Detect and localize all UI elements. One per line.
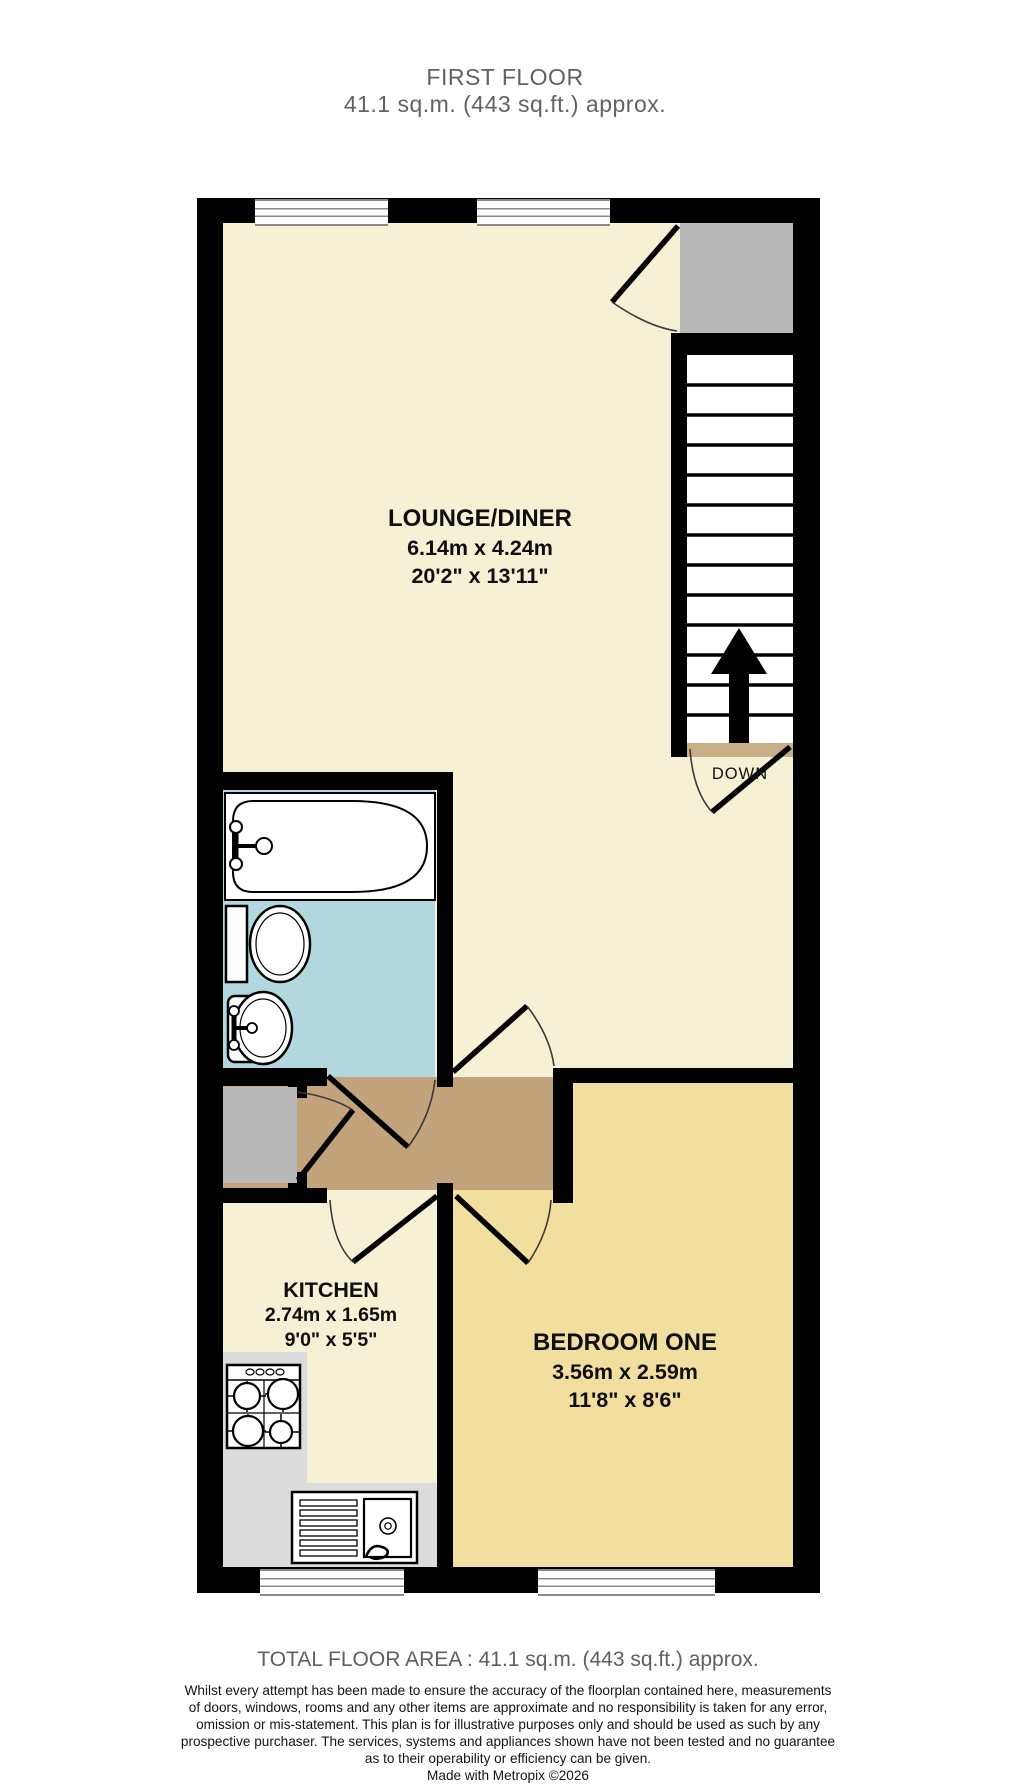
sink-icon xyxy=(292,1492,417,1563)
floor-area-subtitle: 41.1 sq.m. (443 sq.ft.) approx. xyxy=(344,91,666,118)
bathroom-door xyxy=(328,1076,435,1147)
stairs-down-label: DOWN xyxy=(712,765,768,784)
kitchen-label: KITCHEN 2.74m x 1.65m 9'0" x 5'5" xyxy=(265,1277,397,1353)
lounge-label: LOUNGE/DINER 6.14m x 4.24m 20'2" x 13'11… xyxy=(388,504,572,590)
bedroom-imperial: 11'8" x 8'6" xyxy=(533,1386,717,1414)
lounge-hall-door xyxy=(453,1006,554,1072)
bedroom-name: BEDROOM ONE xyxy=(533,1328,717,1358)
floor-title: FIRST FLOOR xyxy=(344,64,666,91)
staircase xyxy=(687,355,793,757)
lounge-imperial: 20'2" x 13'11" xyxy=(388,562,572,590)
hob-icon xyxy=(227,1365,300,1448)
kitchen-imperial: 9'0" x 5'5" xyxy=(265,1328,397,1353)
lounge-metric: 6.14m x 4.24m xyxy=(388,534,572,562)
kitchen-name: KITCHEN xyxy=(265,1277,397,1303)
cupboard-door xyxy=(298,1092,353,1180)
kitchen-door xyxy=(330,1196,437,1262)
page-title: FIRST FLOOR 41.1 sq.m. (443 sq.ft.) appr… xyxy=(344,64,666,118)
floorplan-page: FIRST FLOOR 41.1 sq.m. (443 sq.ft.) appr… xyxy=(0,0,1020,1790)
bedroom-label: BEDROOM ONE 3.56m x 2.59m 11'8" x 8'6" xyxy=(533,1328,717,1414)
bath-icon xyxy=(225,793,435,900)
basin-icon xyxy=(228,992,292,1064)
bedroom-metric: 3.56m x 2.59m xyxy=(533,1358,717,1386)
kitchen-metric: 2.74m x 1.65m xyxy=(265,1303,397,1328)
landing-door xyxy=(612,226,678,331)
lounge-name: LOUNGE/DINER xyxy=(388,504,572,534)
fixtures-overlay xyxy=(0,0,1020,1790)
toilet-icon xyxy=(226,906,310,982)
bedroom-door xyxy=(456,1196,551,1263)
disclaimer-text: Whilst every attempt has been made to en… xyxy=(181,1682,835,1784)
total-floor-area: TOTAL FLOOR AREA : 41.1 sq.m. (443 sq.ft… xyxy=(257,1648,758,1672)
